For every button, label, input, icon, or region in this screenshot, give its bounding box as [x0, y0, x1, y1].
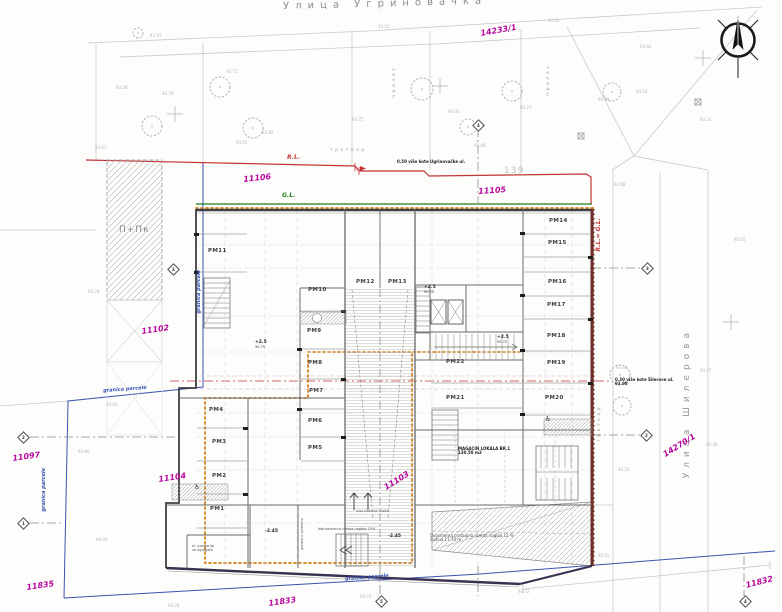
wheelchair-icon: ♿: [545, 416, 551, 423]
parking-spot-label: PM11: [208, 249, 227, 255]
survey-point-number: 4: [477, 123, 480, 128]
parcel-number-label: 11106: [243, 173, 272, 184]
survey-point-marker: 2: [17, 431, 30, 444]
parking-spot-label: PM13: [388, 280, 407, 286]
survey-point-number: 5: [380, 599, 383, 604]
elevation-mark: 93.70: [162, 92, 173, 96]
elevation-mark: 93.71: [226, 70, 237, 74]
parcel-boundary-label: granica parcele: [103, 386, 147, 394]
building-line-label: G.L.: [282, 193, 295, 199]
plot-number: 139: [504, 167, 524, 176]
note-top: 0.50 više kote Ugrinovačke ul.: [397, 160, 465, 164]
parking-spot-label: PM18: [547, 334, 566, 340]
elevation-mark: 93.41: [95, 146, 106, 150]
elevation-mark: 93.38: [706, 443, 717, 447]
label-overlay: Улица Угриновачка Улица Шилерова тротоар…: [0, 0, 782, 612]
parcel-number-label: 11833: [268, 596, 297, 608]
ramp-one-way-label: Jednosmerna rampa nagiba 15%: [318, 528, 375, 532]
parking-spot-label: PM17: [547, 303, 566, 309]
parking-spot-label: PM2: [212, 474, 227, 480]
approach-label-right: прилаз: [547, 64, 552, 96]
level-mark: +2.590.75: [497, 336, 509, 344]
parking-spot-label: PM14: [549, 219, 568, 225]
elevation-mark: 93.75: [360, 595, 371, 599]
parking-spot-label: PM3: [212, 440, 227, 446]
elevation-mark: 93.55: [598, 554, 609, 558]
survey-point-number: 3: [172, 267, 175, 272]
parking-spot-label: PM16: [548, 280, 567, 286]
parking-spot-label: PM19: [547, 361, 566, 367]
elevation-mark: 93.75: [352, 118, 363, 122]
survey-point-number: 3: [646, 266, 649, 271]
level-mark: -2.45: [388, 535, 401, 540]
parking-spot-label: PM4: [209, 408, 224, 414]
elevation-mark: 94.28: [168, 604, 179, 608]
street-name-top: Улица Угриновачка: [283, 0, 487, 12]
elevation-mark: 93.10: [618, 468, 629, 472]
survey-point-marker: 4: [472, 119, 485, 132]
parking-spot-label: PM5: [308, 446, 323, 452]
parcel-number-label: 11104: [158, 472, 187, 484]
parking-spot-label: PM20: [545, 396, 564, 402]
elevation-mark: 93.55: [236, 141, 247, 145]
el-room-label: el. prostorija za agregate: [192, 545, 214, 552]
parcel-number-label: 11105: [478, 186, 506, 196]
parcel-number-label: 11103: [383, 470, 411, 492]
elevation-mark: 93.78: [88, 290, 99, 294]
existing-building-label: П+Пк: [119, 226, 150, 235]
rl-equals-gl-label: R.L.= G.L.: [596, 218, 602, 252]
parcel-boundary-label: granica parcele: [197, 270, 202, 314]
survey-point-marker: 1: [17, 517, 30, 530]
level-mark: +2.590.75: [255, 341, 267, 349]
elevation-mark: 92.59: [598, 98, 609, 102]
site-plan-canvas: Улица Угриновачка Улица Шилерова тротоар…: [0, 0, 782, 612]
wheelchair-icon: ♿: [194, 484, 200, 491]
parking-spot-label: PM21: [446, 396, 465, 402]
elevation-mark: 93.57: [700, 369, 711, 373]
survey-point-marker: 2: [640, 429, 653, 442]
parking-spot-label: PM15: [548, 241, 567, 247]
garage-vertical-label: garaža u suterenu: [301, 518, 305, 550]
parcel-number-label: 11832: [745, 575, 774, 590]
ramp-two-way-label: Dvosmerna pristupna rampa nagiba 12 % du…: [430, 534, 514, 542]
survey-point-marker: 5: [375, 595, 388, 608]
parking-spot-label: PM10: [308, 288, 327, 294]
elevation-mark: 93.58: [116, 86, 127, 90]
street-name-right: Улица Шилерова: [683, 328, 692, 478]
elevation-mark: 93.46: [616, 366, 627, 370]
parcel-number-label: 11102: [141, 324, 170, 336]
level-mark: -2.45: [265, 530, 278, 535]
sidewalk-label-top: тротоар: [330, 149, 367, 154]
parking-spot-label: PM8: [308, 361, 323, 367]
magacin-area: 130.50 m2: [458, 450, 482, 455]
garage-entry-label: ulaz-izlaz za vozila: [356, 510, 389, 514]
elevation-mark: 43.47: [150, 34, 161, 38]
elevation-mark: 93.05: [734, 238, 745, 242]
elevation-mark: 43.41: [548, 19, 559, 23]
elevation-mark: 93.66: [78, 450, 89, 454]
level-mark: +2.590.75: [424, 286, 436, 294]
elevation-mark: 94.05: [448, 110, 459, 114]
elevation-mark: 93.62: [640, 45, 651, 49]
note-right-line2: 93.98: [615, 381, 628, 386]
level-mark-elevation: 90.75: [424, 291, 436, 295]
elevation-mark: 93.82: [262, 131, 273, 135]
survey-point-number: 2: [22, 435, 25, 440]
note-right: 0.30 više kote Šilerove ul. 93.98: [615, 378, 674, 386]
level-mark-elevation: 90.75: [497, 341, 509, 345]
parking-spot-label: PM9: [307, 329, 322, 335]
approach-label-left: прилаз: [393, 66, 398, 98]
parking-spot-label: PM22: [446, 360, 465, 366]
parcel-number-label: 11835: [26, 580, 55, 592]
regulation-line-label: R.L.: [287, 155, 300, 162]
parcel-boundary-label: granica parcele: [42, 468, 47, 512]
elevation-mark: 93.24: [700, 118, 711, 122]
survey-point-number: 1: [22, 521, 25, 526]
el-room-line2: za agregate: [192, 548, 213, 552]
parcel-number-label: 14233/1: [480, 24, 517, 39]
survey-point-marker: 3: [167, 263, 180, 276]
parcel-number-label: 11097: [12, 451, 41, 463]
survey-point-marker: 4: [739, 595, 752, 608]
survey-point-marker: 3: [641, 262, 654, 275]
parking-spot-label: PM6: [308, 419, 323, 425]
level-mark-elevation: 90.75: [255, 346, 267, 350]
parking-spot-label: PM12: [356, 280, 375, 286]
elevation-mark: 93.48: [474, 144, 485, 148]
parcel-boundary-label: granica parcele: [345, 574, 389, 582]
elevation-mark: 43.52: [378, 25, 389, 29]
ramp-two-way-line2: dužina 17.70 m: [430, 537, 461, 542]
parking-spot-label: PM1: [210, 507, 225, 513]
elevation-mark: 93.18: [636, 90, 647, 94]
magacin-label: MAGACIN LOKALA BR.1 130.50 m2: [458, 447, 510, 455]
elevation-mark: 93.72: [518, 590, 529, 594]
elevation-mark: 93.77: [520, 106, 531, 110]
sidewalk-label-right: тротоар: [598, 405, 603, 442]
survey-point-number: 4: [744, 599, 747, 604]
elevation-mark: 94.03: [96, 538, 107, 542]
elevation-mark: 93.84: [106, 403, 117, 407]
survey-point-number: 2: [645, 433, 648, 438]
parking-spot-label: PM7: [309, 389, 324, 395]
elevation-mark: 93.08: [614, 183, 625, 187]
